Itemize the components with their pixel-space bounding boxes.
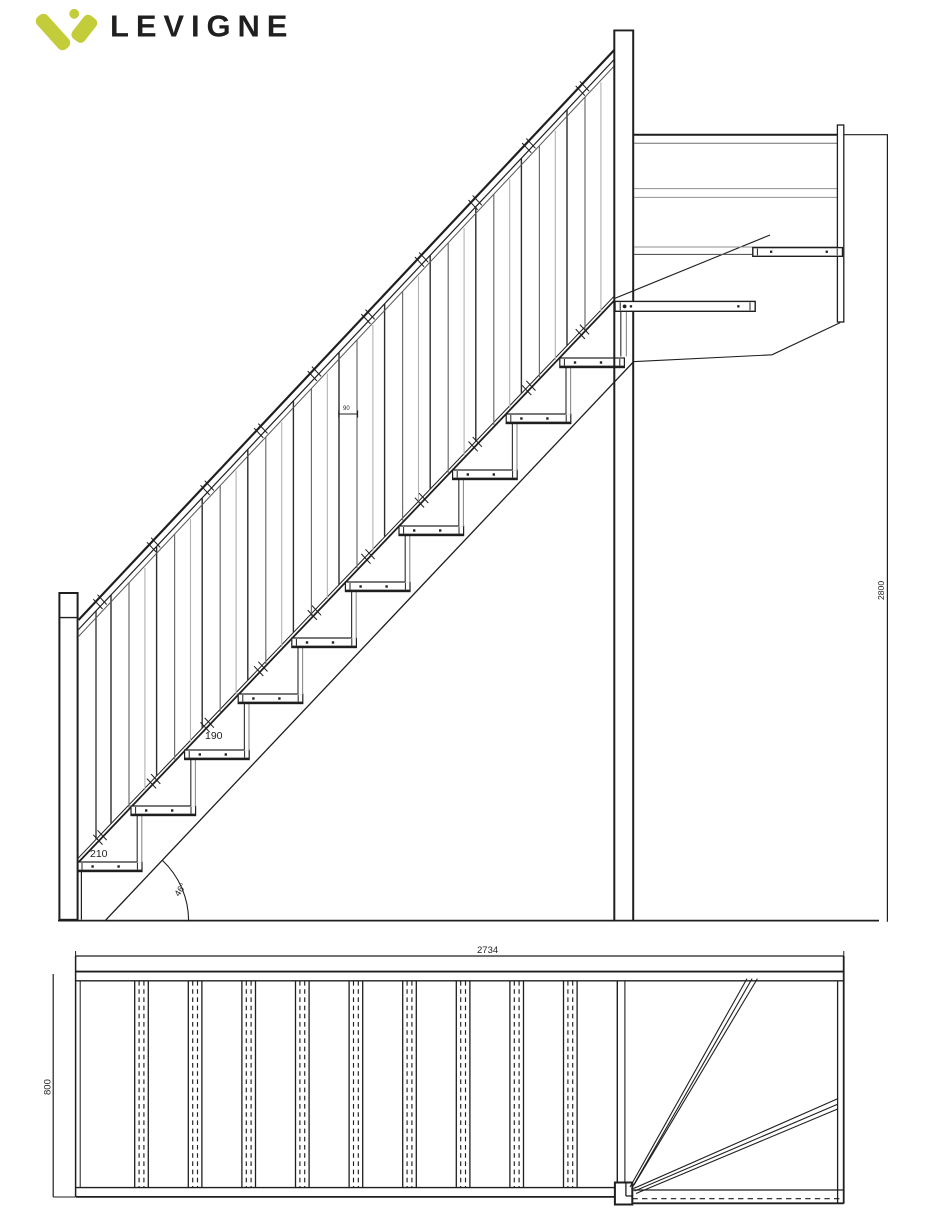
- svg-text:190: 190: [205, 730, 223, 742]
- svg-text:90: 90: [343, 406, 350, 412]
- svg-text:46°: 46°: [172, 881, 188, 898]
- svg-text:2734: 2734: [477, 945, 498, 956]
- svg-text:2800: 2800: [876, 581, 886, 600]
- svg-text:210: 210: [90, 848, 108, 860]
- svg-text:800: 800: [42, 1079, 53, 1095]
- svg-text:LEVIGNE: LEVIGNE: [110, 8, 294, 43]
